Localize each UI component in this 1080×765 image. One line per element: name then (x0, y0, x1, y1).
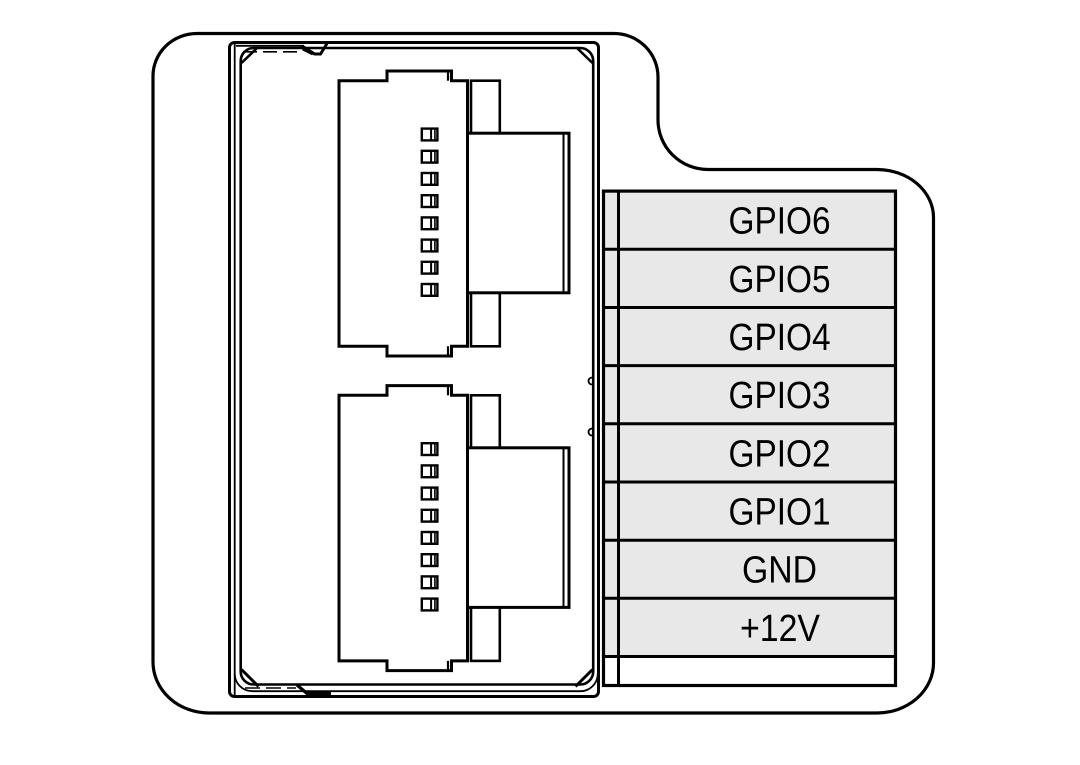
svg-text:GPIO5: GPIO5 (729, 259, 831, 301)
svg-text:GPIO4: GPIO4 (729, 317, 831, 359)
svg-text:GPIO6: GPIO6 (729, 201, 831, 243)
svg-text:GPIO3: GPIO3 (729, 375, 831, 417)
svg-text:GND: GND (742, 550, 817, 592)
svg-text:GPIO1: GPIO1 (729, 491, 831, 533)
svg-text:+12V: +12V (740, 608, 821, 650)
svg-text:GPIO2: GPIO2 (729, 433, 831, 475)
